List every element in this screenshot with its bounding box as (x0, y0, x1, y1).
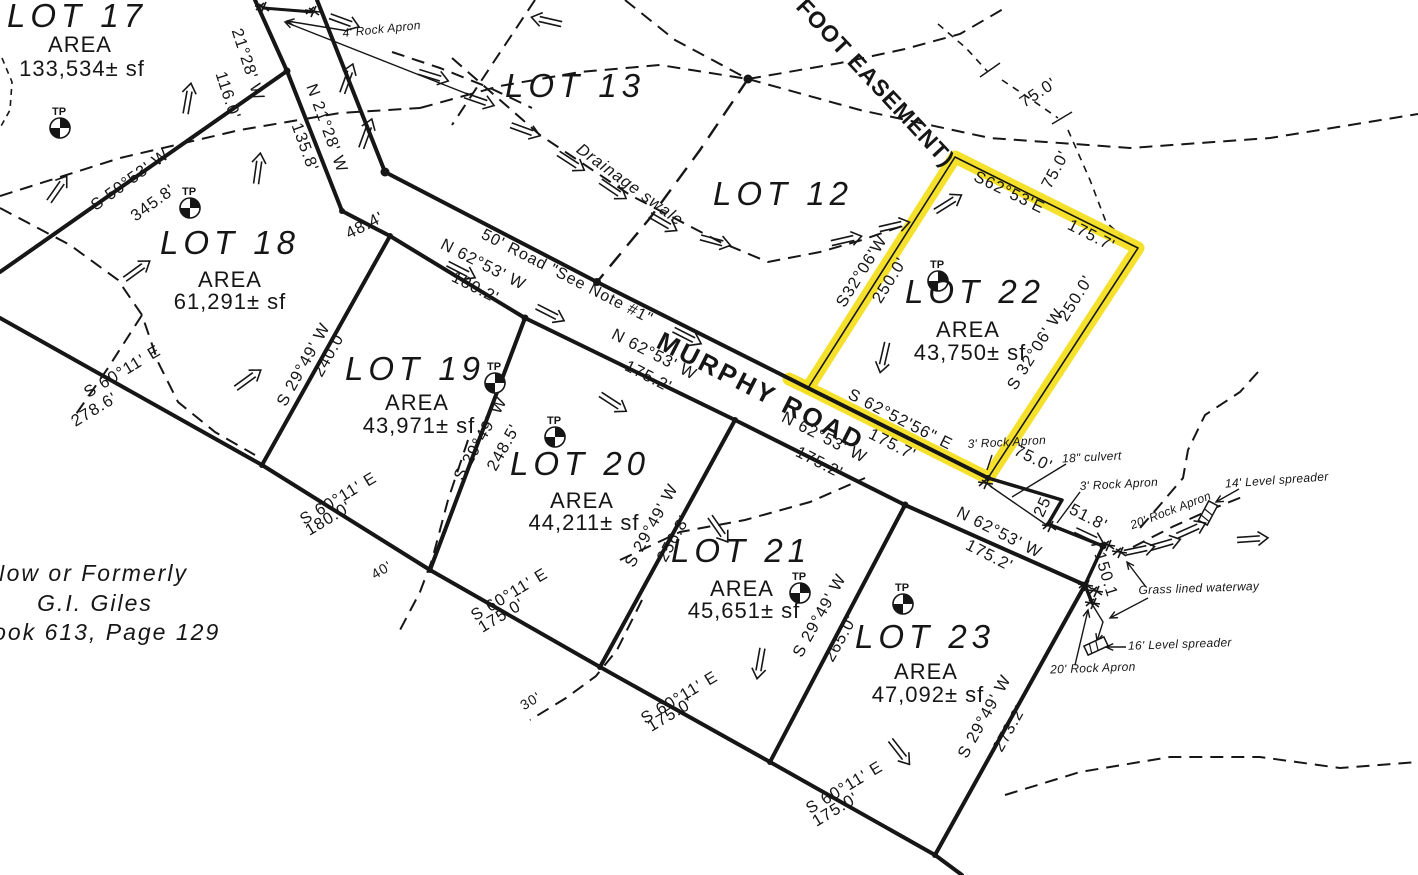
annotation: 16' Level spreader (1128, 635, 1233, 653)
flow-arrow-icon (530, 10, 563, 31)
contour-label: 40' (368, 557, 394, 582)
junction-dot (732, 417, 738, 423)
annotation: 20' Rock Apron (1127, 488, 1213, 532)
junction-dot (339, 208, 345, 214)
leader-line (980, 63, 1000, 77)
tp-benchmark-icon: TP (180, 186, 200, 218)
lot-17-label: LOT 17 (7, 0, 147, 34)
flow-arrow-icon (699, 231, 733, 253)
flow-arrow-icon (750, 647, 769, 680)
junction-dot (259, 462, 265, 468)
junction-dot (1100, 543, 1107, 550)
flow-arrow-icon (873, 341, 894, 374)
lot-17-area-value: 133,534± sf (19, 56, 145, 81)
flow-arrow-icon (121, 255, 154, 285)
annotation: 14' Level spreader (1224, 469, 1329, 490)
tie-distance: 75.0' (1016, 74, 1060, 111)
dashed-line (1005, 757, 1418, 795)
distance: 150.1 (1090, 550, 1121, 600)
junction-dot (597, 664, 603, 670)
flow-arrow-icon (249, 152, 267, 185)
lot-22-label: LOT 22 (905, 273, 1045, 310)
lot-12-label: LOT 12 (713, 175, 853, 212)
annotation: Grass lined waterway (1138, 579, 1260, 597)
annotation: 20' Rock Apron (1049, 660, 1136, 677)
flow-arrow-icon (596, 389, 630, 418)
tie-distance: 75.0' (1038, 148, 1073, 192)
junction-dot (381, 168, 390, 177)
junction-dot (985, 475, 991, 481)
svg-text:TP: TP (182, 186, 196, 198)
junction-dot (744, 75, 753, 84)
flow-arrow-icon (43, 172, 72, 205)
junction-dot (284, 68, 291, 75)
distance: 116.0' (212, 69, 244, 121)
junction-dot (427, 567, 433, 573)
lot-23-label: LOT 23 (855, 618, 995, 655)
contour-label: 30' (517, 688, 543, 713)
lot-23-area-value: 47,092± sf (872, 682, 985, 707)
junction-dot (522, 315, 529, 322)
flow-arrow-icon (232, 364, 265, 394)
flow-arrow-icon (508, 119, 542, 143)
leader-line (1110, 598, 1148, 618)
flow-arrow-icon (885, 736, 915, 769)
lot-18-label: LOT 18 (160, 224, 300, 261)
distance: 51.8' (1066, 500, 1110, 534)
svg-text:TP: TP (930, 259, 944, 271)
adjoiner-owner-line2: G.I. Giles (37, 590, 153, 616)
leader-line (1075, 610, 1088, 665)
flow-arrow-icon (1237, 531, 1269, 547)
junction-dot (1082, 582, 1089, 589)
annotation: 3' Rock Apron (1079, 475, 1158, 493)
lot-20-label: LOT 20 (510, 445, 650, 482)
junction-dot (387, 233, 393, 239)
distance: 345.8' (127, 181, 178, 225)
junction-dot (767, 759, 773, 765)
lot-21-label: LOT 21 (671, 532, 811, 569)
lot-21-area-value: 45,651± sf (688, 598, 801, 623)
svg-text:TP: TP (792, 571, 806, 583)
lot-17-area-heading: AREA (48, 32, 112, 57)
tp-benchmark-icon: TP (485, 361, 505, 393)
easement-label: (50 FOOT EASEMENT) (762, 0, 961, 172)
lot-23-area-heading: AREA (894, 659, 958, 684)
junction-dot (932, 852, 938, 858)
svg-text:TP: TP (52, 106, 66, 118)
annotation: 18" culvert (1062, 448, 1123, 465)
lot-13-label: LOT 13 (505, 67, 645, 104)
lot-19-area-heading: AREA (385, 390, 449, 415)
lot-18-area-value: 61,291± sf (174, 289, 287, 314)
flow-arrow-icon (179, 82, 198, 115)
tp-benchmark-icon: TP (50, 106, 70, 138)
tp-benchmark-icon: TP (545, 415, 565, 447)
lot-20-area-value: 44,211± sf (529, 510, 640, 535)
annotation: 4' Rock Apron (342, 18, 422, 40)
svg-text:TP: TP (895, 582, 909, 594)
svg-text:TP: TP (547, 415, 561, 427)
dashed-line (748, 79, 1418, 148)
junction-dot (902, 502, 909, 509)
svg-text:TP: TP (487, 361, 501, 373)
lot-19-area-value: 43,971± sf (363, 413, 476, 438)
dashed-line (0, 58, 12, 128)
leader-line (1052, 112, 1072, 124)
plat-map-canvas: Subdivision plat map - Murphy Road lots … (0, 0, 1418, 875)
adjoiner-owner-line1: Now or Formerly (0, 560, 188, 586)
lot-22-area-value: 43,750± sf (914, 340, 1027, 365)
plat-map: Subdivision plat map - Murphy Road lots … (0, 0, 1418, 875)
level-spreader-icon (1084, 637, 1108, 655)
adjoiner-owner-line3: Book 613, Page 129 (0, 619, 220, 645)
lot-19-label: LOT 19 (345, 350, 485, 387)
tp-benchmark-icon: TP (893, 582, 913, 614)
lot-22-area-heading: AREA (936, 317, 1000, 342)
annotation: Drainage swale (573, 140, 687, 230)
